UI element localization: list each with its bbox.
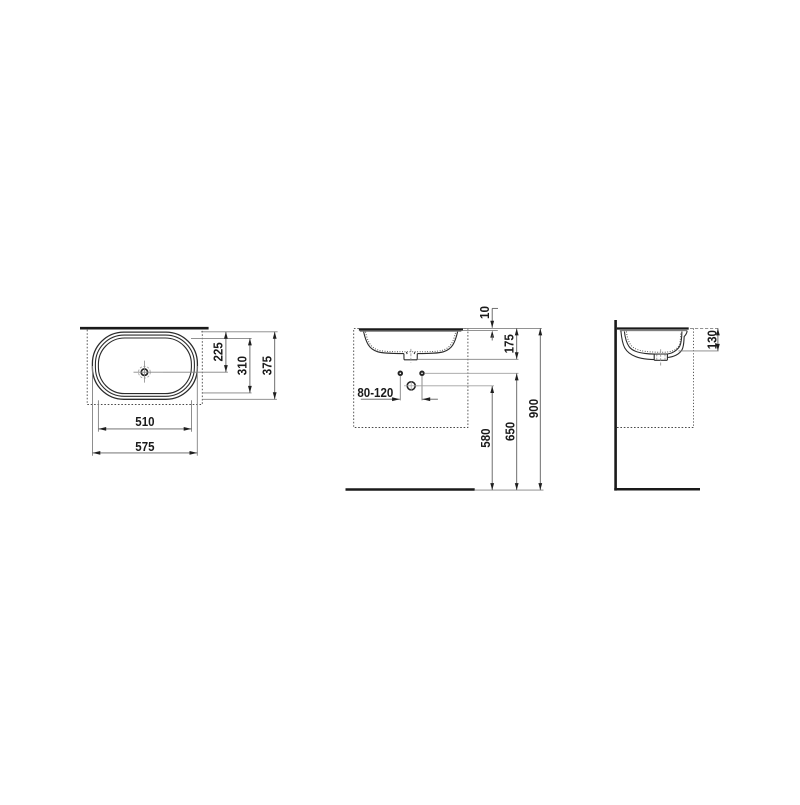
svg-text:900: 900	[526, 399, 541, 418]
svg-text:375: 375	[260, 356, 275, 375]
svg-text:310: 310	[235, 356, 250, 375]
svg-text:130: 130	[704, 330, 719, 349]
svg-text:10: 10	[477, 306, 492, 319]
svg-text:650: 650	[502, 422, 517, 441]
svg-text:510: 510	[135, 414, 154, 429]
svg-text:175: 175	[502, 334, 517, 353]
svg-text:580: 580	[478, 429, 493, 448]
svg-text:80-120: 80-120	[357, 385, 393, 400]
svg-text:575: 575	[135, 439, 154, 454]
svg-text:225: 225	[211, 342, 226, 361]
